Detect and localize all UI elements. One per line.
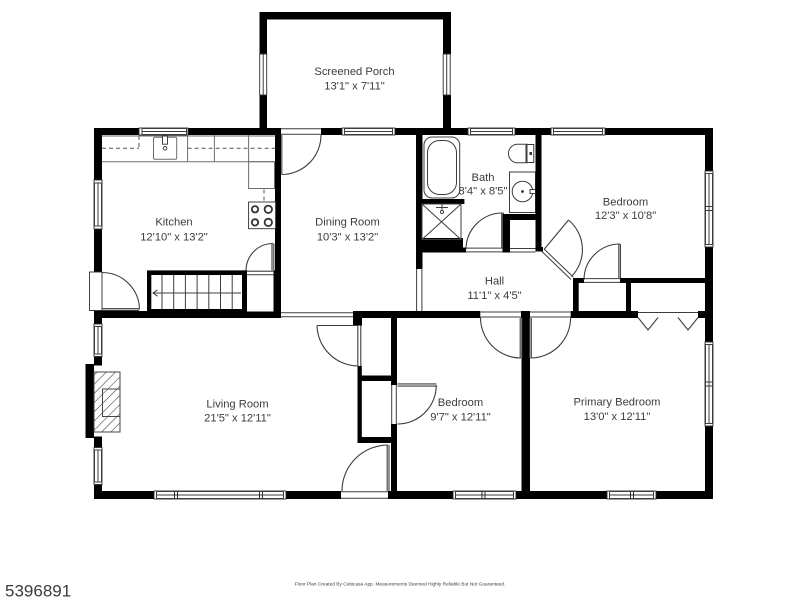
svg-text:12'3" x 10'8": 12'3" x 10'8" bbox=[595, 210, 656, 222]
svg-text:Hall: Hall bbox=[485, 276, 504, 288]
svg-text:Bedroom: Bedroom bbox=[438, 397, 483, 409]
svg-text:21'5" x 12'11": 21'5" x 12'11" bbox=[204, 413, 271, 425]
svg-text:Screened Porch: Screened Porch bbox=[314, 66, 394, 78]
svg-text:Bedroom: Bedroom bbox=[603, 197, 648, 209]
svg-text:Living Room: Living Room bbox=[206, 399, 268, 411]
svg-text:10'3" x 13'2": 10'3" x 13'2" bbox=[317, 232, 378, 244]
svg-text:Primary Bedroom: Primary Bedroom bbox=[573, 397, 660, 409]
svg-text:13'0" x 12'11": 13'0" x 12'11" bbox=[584, 411, 651, 423]
svg-text:8'4" x 8'5": 8'4" x 8'5" bbox=[459, 186, 508, 198]
svg-text:Bath: Bath bbox=[471, 172, 494, 184]
svg-text:Floor Plan Created By Cubicasa: Floor Plan Created By Cubicasa App. Meas… bbox=[295, 582, 506, 588]
svg-text:13'1" x 7'11": 13'1" x 7'11" bbox=[324, 81, 385, 93]
svg-text:9'7" x 12'11": 9'7" x 12'11" bbox=[430, 412, 491, 424]
svg-text:12'10" x 13'2": 12'10" x 13'2" bbox=[140, 232, 208, 244]
svg-text:5396891: 5396891 bbox=[5, 582, 71, 600]
svg-text:Kitchen: Kitchen bbox=[155, 217, 192, 229]
svg-text:11'1" x 4'5": 11'1" x 4'5" bbox=[467, 290, 521, 302]
svg-text:Dining Room: Dining Room bbox=[315, 217, 380, 229]
